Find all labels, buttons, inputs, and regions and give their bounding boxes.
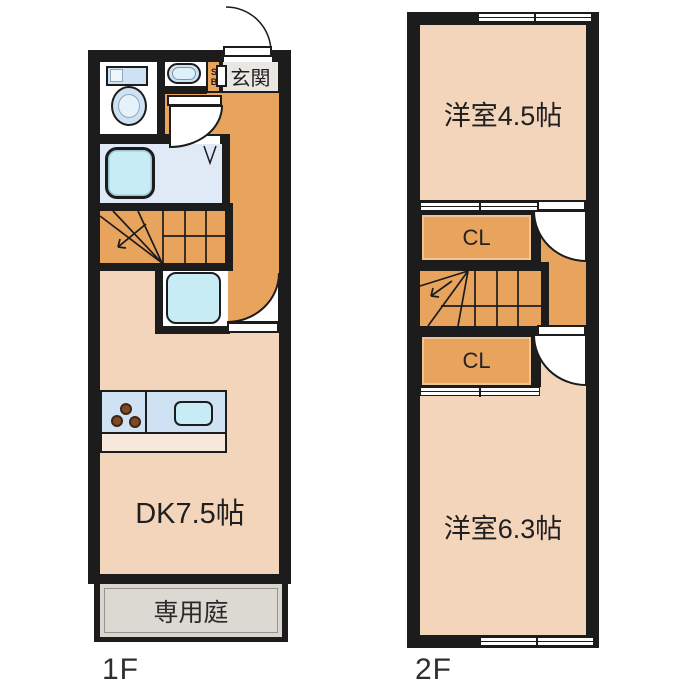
- toilet-lid-icon: [110, 69, 123, 82]
- entrance-door-leaf: [223, 46, 272, 57]
- closet-bottom-doors: [420, 387, 540, 396]
- window-top-2f: [478, 13, 592, 22]
- window-bottom-2f: [480, 637, 594, 646]
- toilet-bowl-inner: [118, 94, 140, 118]
- dk-label: DK7.5帖: [100, 490, 280, 532]
- bath-door-leaf: [167, 95, 222, 106]
- stove-burner-icon: [111, 415, 123, 427]
- private-garden: 専用庭: [94, 584, 288, 642]
- bath-right-wall: [222, 134, 230, 211]
- bathtub-icon: [105, 147, 155, 199]
- bath-bottom-wall: [88, 203, 233, 211]
- kitchen-divider: [145, 392, 147, 434]
- room-45-door-leaf: [537, 200, 586, 211]
- room-45-label: 洋室4.5帖: [420, 94, 586, 133]
- floor-label-1f: 1F: [102, 653, 139, 687]
- washer-left-wall: [155, 263, 163, 334]
- floor-label-2f: 2F: [415, 653, 452, 687]
- washbasin-inner: [172, 67, 196, 80]
- stove-burner-icon: [120, 403, 132, 415]
- dk-bottom-wall: [88, 574, 291, 584]
- kitchen-sink: [174, 401, 213, 426]
- wall-below-closet-top: [407, 262, 541, 271]
- dk-door-leaf: [227, 322, 279, 333]
- staircase-2f: [420, 271, 541, 326]
- wall-below-stairs-2f: [407, 326, 541, 335]
- washing-machine-pan: [166, 272, 221, 324]
- garden-label: 専用庭: [153, 593, 228, 629]
- stove-burner-icon: [129, 416, 141, 428]
- floor-plan-canvas: SB 玄関: [0, 0, 700, 700]
- closet-top-right-wall: [533, 213, 541, 262]
- room-63-door-leaf: [537, 325, 586, 336]
- hall-corridor: [228, 144, 279, 323]
- bath-door-opening: [172, 136, 220, 144]
- room-63-label: 洋室6.3帖: [420, 507, 586, 546]
- staircase-1f: [100, 211, 228, 263]
- closet-top: CL: [420, 213, 533, 262]
- closet-top-doors: [420, 202, 540, 211]
- closet-bottom-right-wall: [533, 335, 541, 387]
- washbasin-wall: [163, 86, 207, 94]
- garden-fence: 専用庭: [104, 588, 278, 633]
- closet-bottom-label: CL: [462, 348, 490, 374]
- stairs-right-wall-1f: [225, 203, 233, 271]
- washer-bottom-wall: [155, 326, 230, 334]
- closet-top-label: CL: [462, 225, 490, 251]
- toilet-right-wall: [157, 62, 165, 144]
- entrance-area: 玄関: [221, 60, 280, 93]
- entrance-step: [216, 65, 227, 87]
- entrance-label: 玄関: [231, 62, 271, 91]
- closet-bottom: CL: [420, 335, 533, 387]
